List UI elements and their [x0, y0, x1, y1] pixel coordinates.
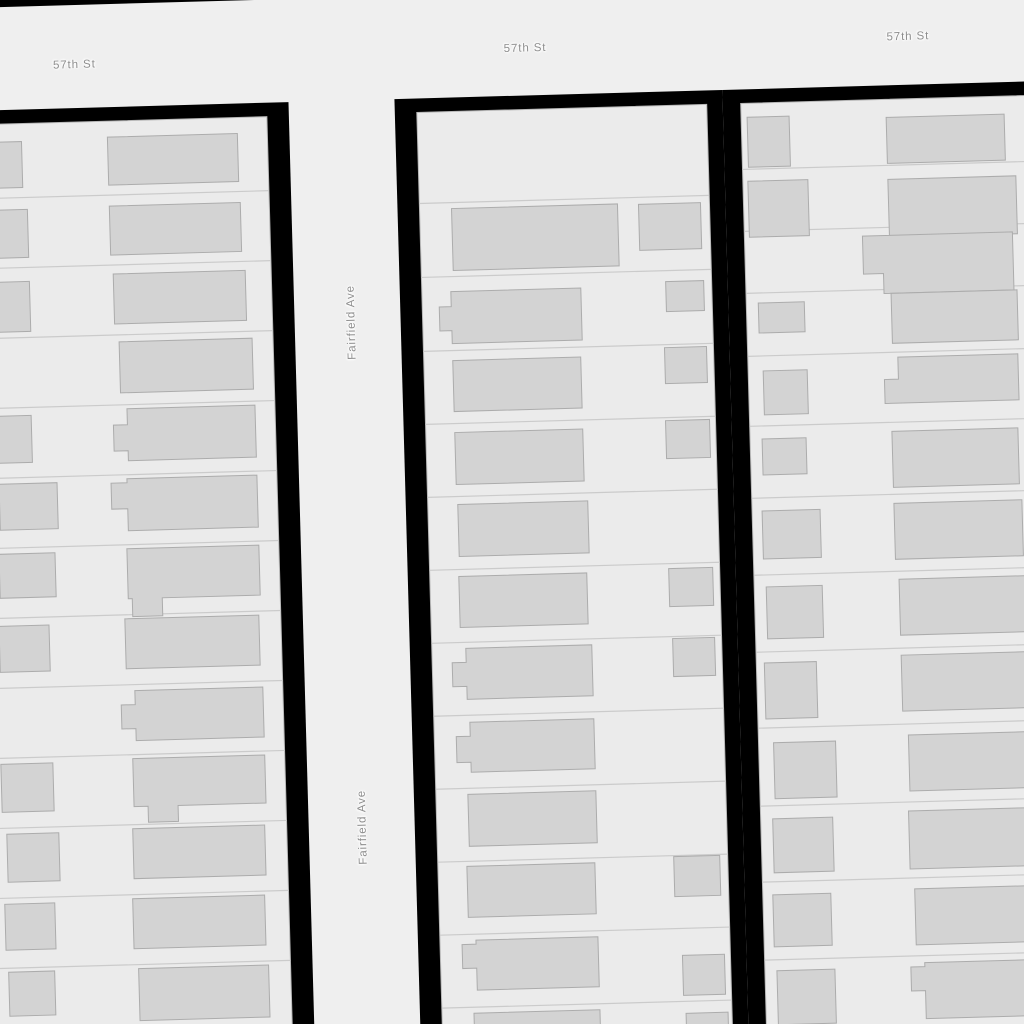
- map-svg: [0, 0, 1024, 1024]
- building-footprint: [766, 585, 823, 639]
- building-footprint: [5, 903, 56, 950]
- building-footprint: [892, 428, 1020, 487]
- building-footprint: [901, 652, 1024, 712]
- building-footprint: [111, 475, 258, 531]
- building-footprint: [0, 415, 32, 465]
- building-footprint: [452, 204, 620, 271]
- building-footprint: [462, 937, 599, 991]
- building-footprint: [886, 114, 1005, 163]
- building-footprint: [758, 302, 805, 333]
- building-footprint: [748, 180, 810, 238]
- building-footprint: [763, 370, 808, 415]
- building-footprint: [888, 176, 1018, 238]
- building-footprint: [915, 885, 1024, 944]
- building-footprint: [7, 833, 60, 882]
- building-footprint: [439, 288, 582, 344]
- building-footprint: [884, 354, 1019, 404]
- building-footprint: [638, 203, 701, 251]
- building-footprint: [113, 270, 246, 324]
- block-north-of-57th-st-border: [0, 0, 280, 12]
- building-footprint: [894, 500, 1024, 560]
- map-canvas: 57th St 57th St 57th St Fairfield Ave Fa…: [0, 0, 1024, 1024]
- building-footprint: [0, 553, 56, 599]
- building-footprint: [452, 645, 593, 700]
- building-footprint: [908, 732, 1024, 791]
- building-footprint: [458, 501, 589, 557]
- building-footprint: [909, 807, 1024, 869]
- building-footprint: [133, 825, 266, 879]
- map-viewport[interactable]: 57th St 57th St 57th St Fairfield Ave Fa…: [0, 0, 1024, 1024]
- building-footprint: [773, 893, 832, 947]
- building-footprint: [453, 357, 582, 412]
- building-footprint: [686, 1012, 729, 1024]
- building-footprint: [899, 576, 1024, 635]
- building-footprint: [139, 965, 270, 1021]
- building-footprint: [9, 971, 56, 1016]
- building-footprint: [764, 662, 818, 719]
- building-footprint: [468, 791, 597, 847]
- building-footprint: [666, 281, 705, 312]
- building-footprint: [0, 142, 23, 190]
- building-footprint: [0, 209, 29, 259]
- building-footprint: [0, 625, 50, 672]
- building-footprint: [666, 419, 711, 458]
- building-footprint: [669, 567, 714, 606]
- building-footprint: [777, 969, 836, 1024]
- building-footprint: [121, 687, 264, 741]
- building-footprint: [113, 405, 256, 461]
- building-footprint: [0, 281, 31, 333]
- building-footprint: [133, 895, 266, 949]
- building-footprint: [747, 116, 790, 167]
- building-footprint: [773, 817, 834, 873]
- building-footprint: [862, 232, 1014, 294]
- building-footprint: [1, 763, 54, 812]
- building-footprint: [107, 134, 238, 186]
- building-footprint: [673, 637, 716, 676]
- building-footprint: [109, 202, 241, 255]
- building-footprint: [664, 347, 707, 384]
- building-footprint: [119, 338, 253, 393]
- building-footprint: [125, 615, 260, 669]
- building-footprint: [674, 855, 721, 896]
- building-footprint: [891, 290, 1018, 343]
- building-footprint: [762, 509, 821, 559]
- building-footprint: [459, 573, 588, 628]
- building-footprint: [911, 959, 1024, 1019]
- building-footprint: [762, 438, 807, 475]
- building-footprint: [467, 863, 596, 918]
- building-footprint: [682, 954, 725, 995]
- building-footprint: [0, 483, 58, 531]
- building-footprint: [774, 741, 838, 799]
- building-footprint: [455, 429, 584, 485]
- building-footprint: [456, 719, 595, 773]
